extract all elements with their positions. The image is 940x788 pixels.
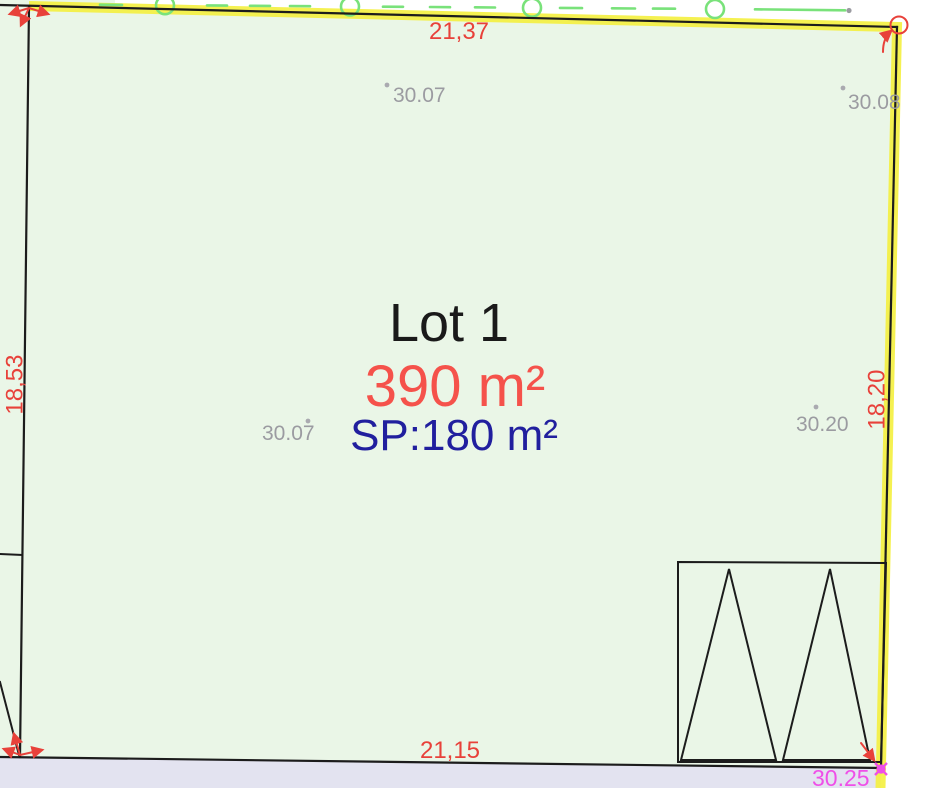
elevation-top-right: 30.08: [848, 92, 901, 114]
dimension-bottom: 21,15: [410, 738, 490, 763]
dimension-right: 18,20: [864, 359, 889, 441]
dimension-top: 21,37: [419, 19, 499, 44]
dimension-left: 18,53: [2, 344, 27, 426]
elevation-dot: [814, 405, 819, 410]
elevation-mid-left: 30.07: [262, 423, 315, 445]
lot-buildable-surface: SP:180 m²: [304, 413, 604, 459]
site-plan-canvas: 21,37 21,15 18,53 18,20 Lot 1 390 m² SP:…: [0, 0, 940, 788]
elevation-dot: [385, 83, 390, 88]
elevation-top-left: 30.07: [393, 85, 446, 107]
lot-name: Lot 1: [299, 295, 599, 352]
elevation-bottom-right: 30.25: [812, 766, 870, 788]
elevation-dot: [841, 86, 846, 91]
lot-area: 390 m²: [305, 357, 605, 418]
elevation-mid-right: 30.20: [796, 414, 849, 436]
